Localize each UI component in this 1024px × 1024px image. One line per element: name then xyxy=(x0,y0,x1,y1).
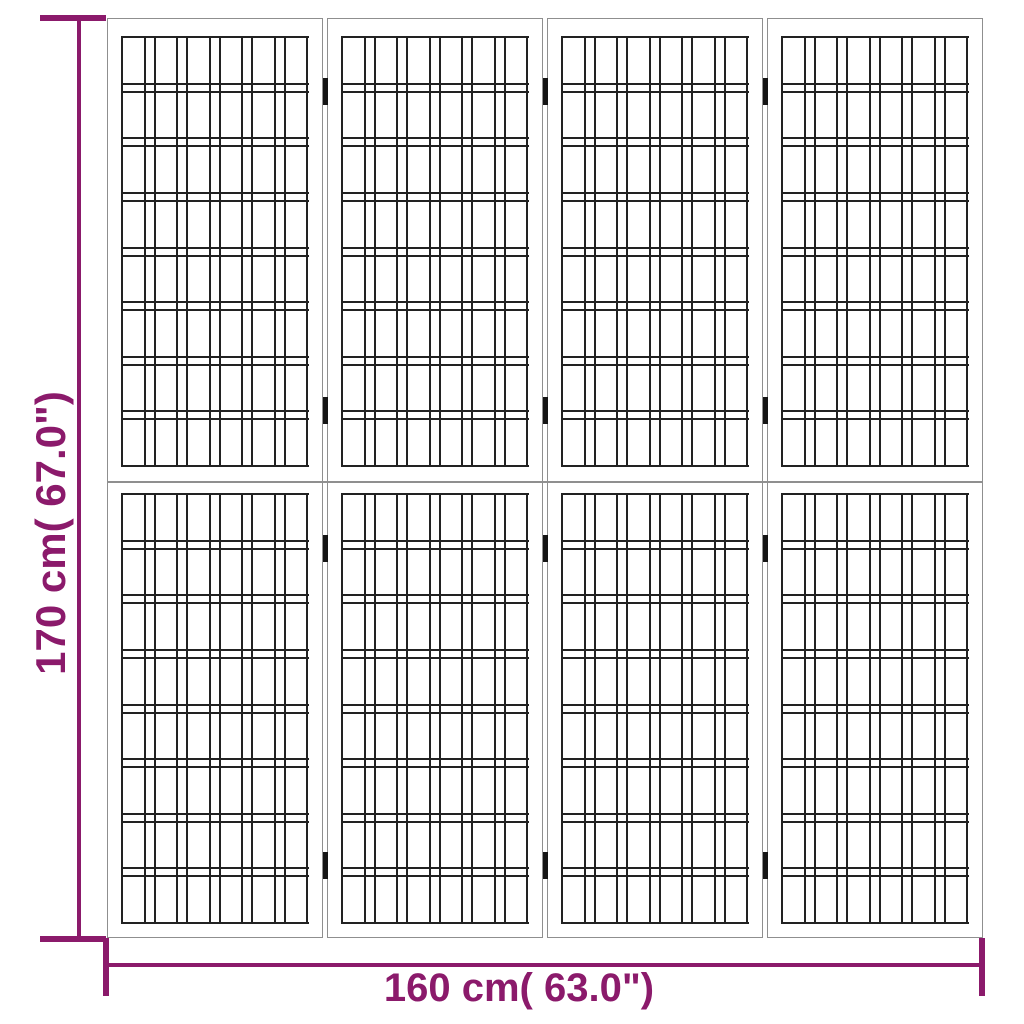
lattice-band xyxy=(561,247,749,257)
lattice-band xyxy=(781,813,969,823)
lattice-band xyxy=(781,649,969,659)
height-dimension-line xyxy=(77,16,81,941)
lattice-band xyxy=(121,649,309,659)
panel-lower-lattice xyxy=(781,495,969,922)
panel-lower-lattice xyxy=(561,495,749,922)
height-dimension-cap-bottom xyxy=(40,936,106,942)
lattice-band xyxy=(341,758,529,768)
product-dimension-diagram: 170 cm( 67.0") 160 cm( 63.0") xyxy=(0,0,1024,1024)
panel-lower-lattice xyxy=(341,495,529,922)
mid-seam-line xyxy=(107,481,983,483)
lattice-band xyxy=(561,540,749,550)
lattice-band xyxy=(121,540,309,550)
lattice-band xyxy=(341,594,529,604)
lattice-band xyxy=(341,649,529,659)
lattice-band xyxy=(781,192,969,202)
lattice-band xyxy=(561,192,749,202)
lattice-band xyxy=(341,356,529,366)
lattice-band xyxy=(121,594,309,604)
panel-bottom-rail xyxy=(561,922,749,937)
divider-panel xyxy=(327,18,543,938)
lattice-band xyxy=(561,410,749,420)
lattice-band xyxy=(561,301,749,311)
lattice-band xyxy=(341,867,529,877)
panel-upper-lattice xyxy=(561,38,749,465)
lattice-band xyxy=(341,410,529,420)
panel-upper-lattice xyxy=(121,38,309,465)
lattice-band xyxy=(561,594,749,604)
panel-bottom-rail xyxy=(781,922,969,937)
divider-panel xyxy=(547,18,763,938)
hinge-mark xyxy=(763,852,768,879)
hinge-mark xyxy=(543,852,548,879)
lattice-band xyxy=(781,301,969,311)
panel-top-rail xyxy=(561,19,749,38)
hinge-mark xyxy=(543,535,548,562)
lattice-band xyxy=(781,704,969,714)
panel-bottom-rail xyxy=(121,922,309,937)
hinge-mark xyxy=(763,397,768,424)
lattice-band xyxy=(561,137,749,147)
mid-rail-edges xyxy=(561,465,749,495)
panel-bottom-rail xyxy=(341,922,529,937)
lattice-band xyxy=(781,247,969,257)
lattice-band xyxy=(121,813,309,823)
lattice-band xyxy=(561,704,749,714)
panel-upper-lattice xyxy=(781,38,969,465)
lattice-band xyxy=(341,704,529,714)
lattice-band xyxy=(121,301,309,311)
lattice-band xyxy=(341,137,529,147)
room-divider xyxy=(107,18,983,938)
hinge-mark xyxy=(763,535,768,562)
lattice-band xyxy=(561,83,749,93)
hinge-mark xyxy=(543,78,548,105)
lattice-band xyxy=(341,83,529,93)
lattice-band xyxy=(561,813,749,823)
lattice-band xyxy=(781,83,969,93)
mid-rail-edges xyxy=(781,465,969,495)
lattice-band xyxy=(561,867,749,877)
lattice-band xyxy=(781,356,969,366)
panel-mid-rail xyxy=(768,465,982,495)
lattice-band xyxy=(781,867,969,877)
lattice-band xyxy=(121,356,309,366)
panel-mid-rail xyxy=(328,465,542,495)
lattice-band xyxy=(781,594,969,604)
lattice-band xyxy=(121,758,309,768)
panel-lower-lattice xyxy=(121,495,309,922)
panel-upper-lattice xyxy=(341,38,529,465)
hinge-mark xyxy=(763,78,768,105)
lattice-band xyxy=(341,247,529,257)
lattice-band xyxy=(121,704,309,714)
panel-mid-rail xyxy=(108,465,322,495)
lattice-band xyxy=(121,410,309,420)
height-dimension-cap-top xyxy=(40,15,106,21)
lattice-band xyxy=(121,83,309,93)
hinge-mark xyxy=(323,397,328,424)
lattice-band xyxy=(561,649,749,659)
lattice-band xyxy=(121,192,309,202)
hinge-mark xyxy=(323,535,328,562)
divider-panel xyxy=(767,18,983,938)
lattice-band xyxy=(781,758,969,768)
width-dimension-label: 160 cm( 63.0") xyxy=(103,966,935,1011)
lattice-band xyxy=(341,192,529,202)
hinge-mark xyxy=(323,78,328,105)
panel-top-rail xyxy=(341,19,529,38)
lattice-band xyxy=(121,247,309,257)
lattice-band xyxy=(341,301,529,311)
panel-mid-rail xyxy=(548,465,762,495)
lattice-band xyxy=(341,540,529,550)
lattice-band xyxy=(341,813,529,823)
lattice-band xyxy=(121,867,309,877)
mid-rail-edges xyxy=(341,465,529,495)
divider-panel xyxy=(107,18,323,938)
width-dimension-cap-right xyxy=(979,938,985,996)
lattice-band xyxy=(561,356,749,366)
lattice-band xyxy=(781,410,969,420)
lattice-band xyxy=(781,540,969,550)
hinge-mark xyxy=(543,397,548,424)
lattice-band xyxy=(781,137,969,147)
panel-top-rail xyxy=(781,19,969,38)
lattice-band xyxy=(561,758,749,768)
lattice-band xyxy=(121,137,309,147)
panel-top-rail xyxy=(121,19,309,38)
hinge-mark xyxy=(323,852,328,879)
mid-rail-edges xyxy=(121,465,309,495)
